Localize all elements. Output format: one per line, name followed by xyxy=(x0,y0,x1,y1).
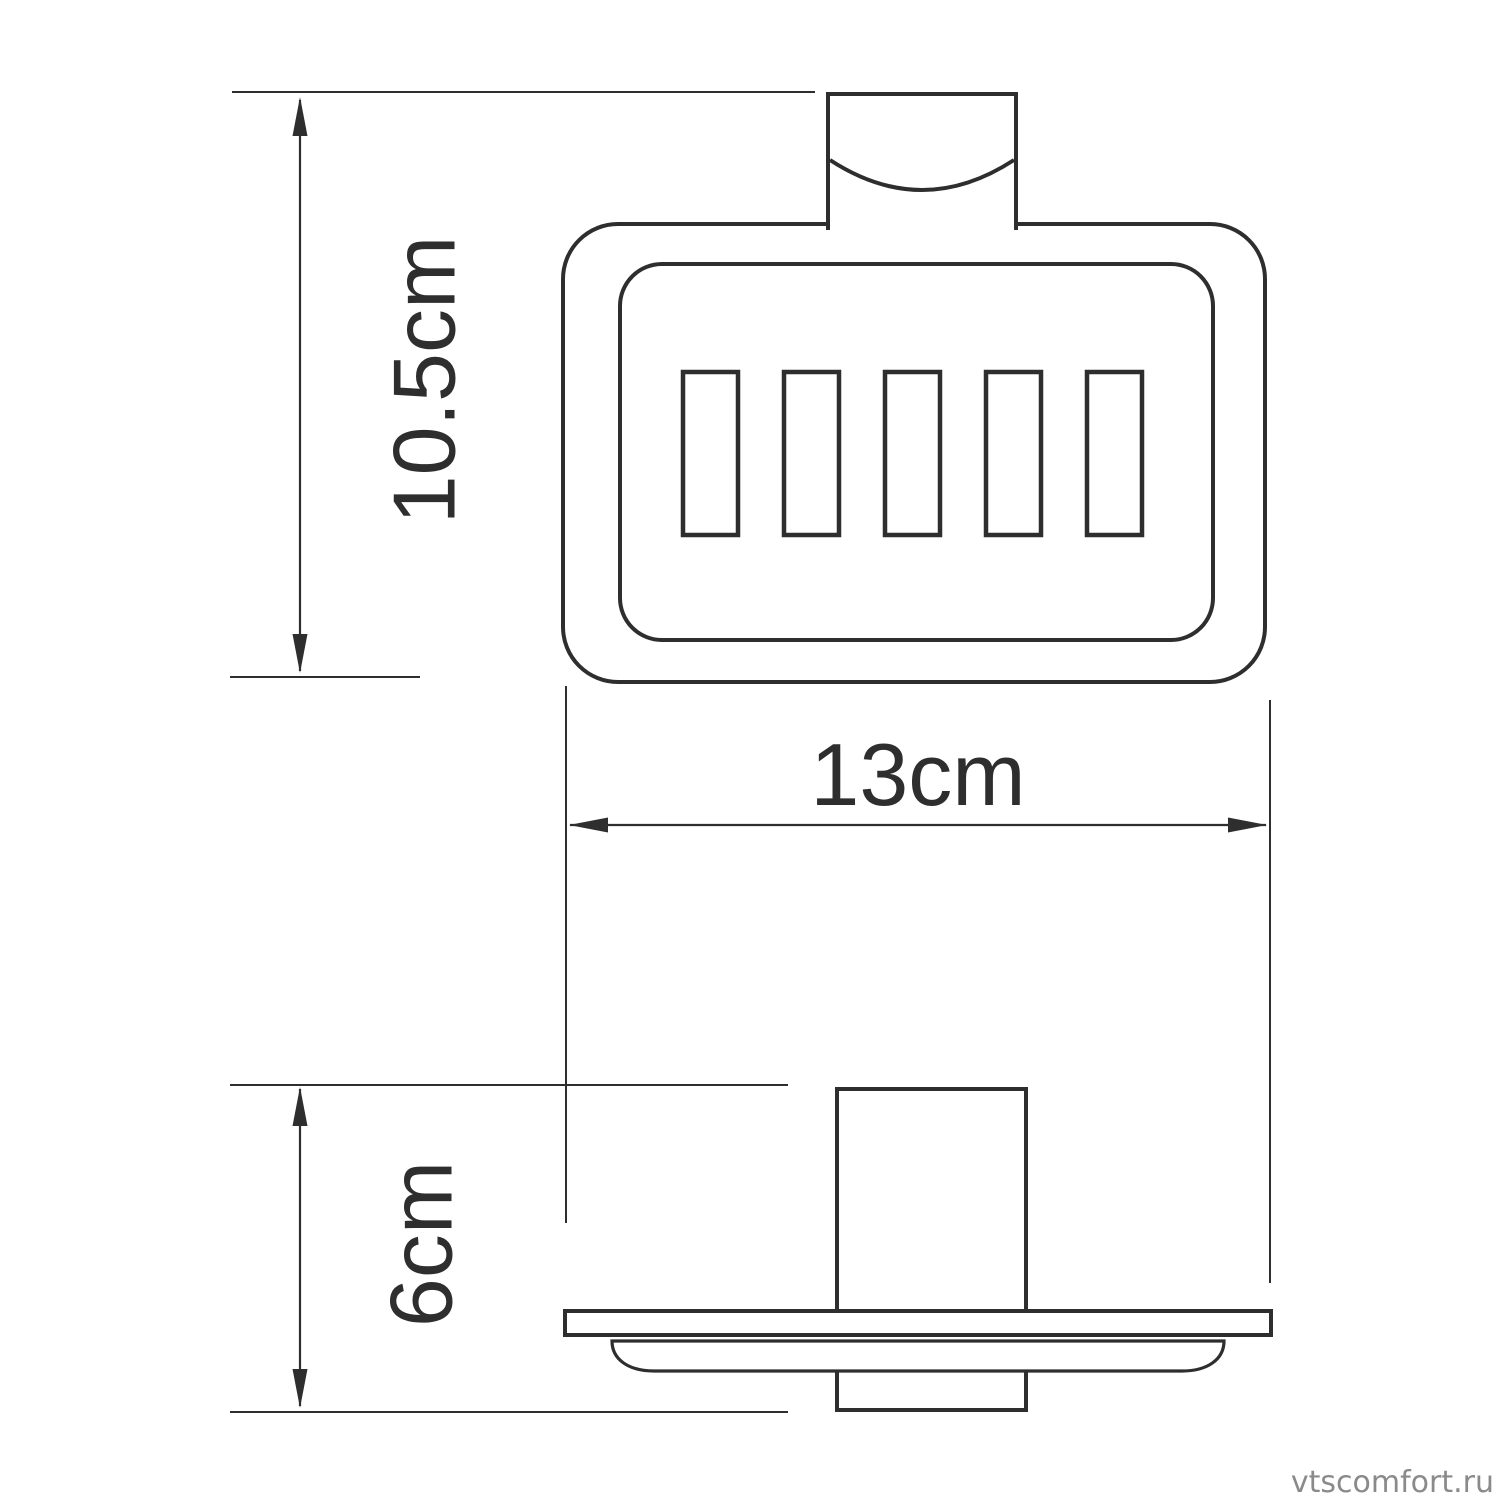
technical-drawing-canvas: 10.5cm 13cm 6cm vtscomfort.ru xyxy=(0,0,1503,1504)
width-arrow-left-icon xyxy=(569,818,608,833)
depth-arrow-up-icon xyxy=(293,1087,308,1126)
dimension-label-width: 13cm xyxy=(810,725,1025,824)
drain-slot-1 xyxy=(683,372,738,535)
dimension-label-depth: 6cm xyxy=(372,1161,471,1327)
height-arrow-up-icon xyxy=(293,97,308,136)
drain-slot-5 xyxy=(1087,372,1142,535)
depth-arrow-down-icon xyxy=(293,1369,308,1408)
height-arrow-down-icon xyxy=(293,634,308,673)
width-arrow-right-icon xyxy=(1228,818,1267,833)
top-view xyxy=(563,94,1265,682)
drain-slot-4 xyxy=(986,372,1041,535)
dish-plate xyxy=(565,1311,1271,1335)
wall-bracket-tab xyxy=(828,94,1016,230)
drain-slot-3 xyxy=(885,372,940,535)
side-view xyxy=(565,1089,1271,1410)
dimension-label-height: 10.5cm xyxy=(375,236,474,525)
technical-drawing-page: 10.5cm 13cm 6cm vtscomfort.ru xyxy=(0,0,1503,1504)
dish-body xyxy=(612,1341,1224,1371)
drain-slot-2 xyxy=(784,372,839,535)
watermark: vtscomfort.ru xyxy=(1291,1465,1494,1500)
